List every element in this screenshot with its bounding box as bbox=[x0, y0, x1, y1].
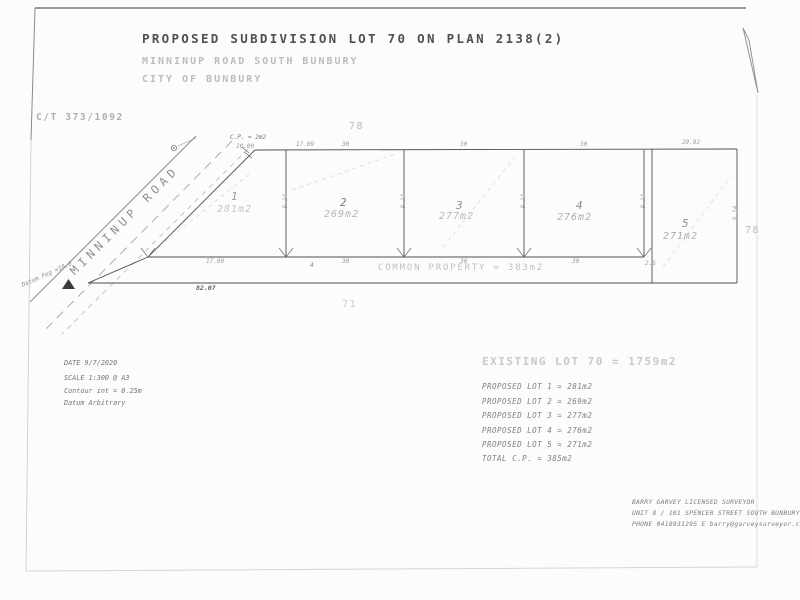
legend-datum: Datum Arbitrary bbox=[64, 400, 125, 407]
lot-1-area: 281m2 bbox=[217, 205, 252, 215]
lot-1-bottom-dimension: 17.09 bbox=[206, 259, 224, 265]
schedule-row-lot-4: PROPOSED LOT 4 = 276m2 bbox=[482, 427, 592, 435]
schedule-row-lot-2: PROPOSED LOT 2 = 269m2 bbox=[482, 398, 592, 406]
lot-5-area: 271m2 bbox=[663, 232, 698, 242]
neighbour-lot-right: 78 bbox=[745, 226, 760, 236]
lot-4-top-dimension: 30 bbox=[580, 142, 587, 148]
common-property-width: 4 bbox=[310, 263, 314, 269]
lot-2-number: 2 bbox=[340, 197, 347, 208]
scan-border bbox=[26, 8, 757, 571]
lot-4-number: 4 bbox=[576, 200, 583, 211]
corner-cp-note: C.P. = 2m2 bbox=[230, 135, 266, 141]
surveyor-contact: PHONE 0418931295 E barry@garveysurveyor.… bbox=[632, 522, 800, 528]
corner-ticks bbox=[141, 147, 651, 257]
road-lines bbox=[30, 136, 248, 334]
schedule-row-lot-1: PROPOSED LOT 1 = 281m2 bbox=[482, 383, 592, 391]
lot-1-number: 1 bbox=[231, 191, 238, 202]
lot-1-top-dimension: 17.09 bbox=[296, 142, 314, 148]
corner-cp-dimension: 10.00 bbox=[236, 144, 254, 150]
surveyor-address: UNIT 8 / 101 SPENCER STREET SOUTH BUNBUR… bbox=[632, 511, 800, 517]
lot-divider-dimension-2: 9.14 bbox=[401, 194, 407, 208]
overall-frontage-dimension: 82.07 bbox=[196, 285, 216, 292]
lot-divider-dimension-4: 9.14 bbox=[641, 194, 647, 208]
lot-5-number: 5 bbox=[682, 218, 689, 229]
legend-date: DATE 9/7/2020 bbox=[64, 360, 117, 367]
lot-5-bottom-dimension: 2.5 bbox=[645, 261, 656, 267]
certificate-of-title: C/T 373/1092 bbox=[36, 113, 124, 123]
lot-5-side-dimension: 9.14 bbox=[733, 206, 739, 220]
lot-4-bottom-dimension: 30 bbox=[572, 259, 579, 265]
plan-subtitle-road: MINNINUP ROAD SOUTH BUNBURY bbox=[142, 57, 359, 67]
common-property-label: COMMON PROPERTY = 383m2 bbox=[378, 264, 544, 273]
schedule-row-lot-3: PROPOSED LOT 3 = 277m2 bbox=[482, 412, 592, 420]
lot-2-area: 269m2 bbox=[324, 210, 359, 220]
lot-3-top-dimension: 30 bbox=[460, 142, 467, 148]
schedule-existing-lot: EXISTING LOT 70 = 1759m2 bbox=[482, 356, 677, 367]
surveyor-name: BARRY GARVEY LICENSED SURVEYOR bbox=[632, 500, 755, 506]
legend-scale: SCALE 1:300 @ A3 bbox=[64, 375, 129, 382]
lot-3-number: 3 bbox=[456, 200, 463, 211]
plan-subtitle-city: CITY OF BUNBURY bbox=[142, 75, 262, 85]
lot-divider-dimension-3: 9.14 bbox=[521, 194, 527, 208]
plan-title: PROPOSED SUBDIVISION LOT 70 ON PLAN 2138… bbox=[142, 33, 565, 46]
schedule-row-lot-5: PROPOSED LOT 5 = 271m2 bbox=[482, 441, 592, 449]
lot-2-bottom-dimension: 30 bbox=[342, 259, 349, 265]
neighbour-lot-top: 78 bbox=[349, 122, 364, 132]
schedule-total-cp: TOTAL C.P. = 385m2 bbox=[482, 455, 572, 463]
scanned-survey-plan: PROPOSED SUBDIVISION LOT 70 ON PLAN 2138… bbox=[0, 0, 800, 600]
lot-4-area: 276m2 bbox=[557, 213, 592, 223]
page-fold bbox=[743, 28, 758, 93]
lot-2-top-dimension: 30 bbox=[342, 142, 349, 148]
legend-contour-interval: Contour int = 0.25m bbox=[64, 388, 142, 395]
lot-3-area: 277m2 bbox=[439, 212, 474, 222]
neighbour-lot-bottom: 71 bbox=[342, 300, 357, 310]
lot-divider-dimension-1: 9.14 bbox=[283, 194, 289, 208]
lot-5-top-dimension: 29.92 bbox=[682, 140, 700, 146]
